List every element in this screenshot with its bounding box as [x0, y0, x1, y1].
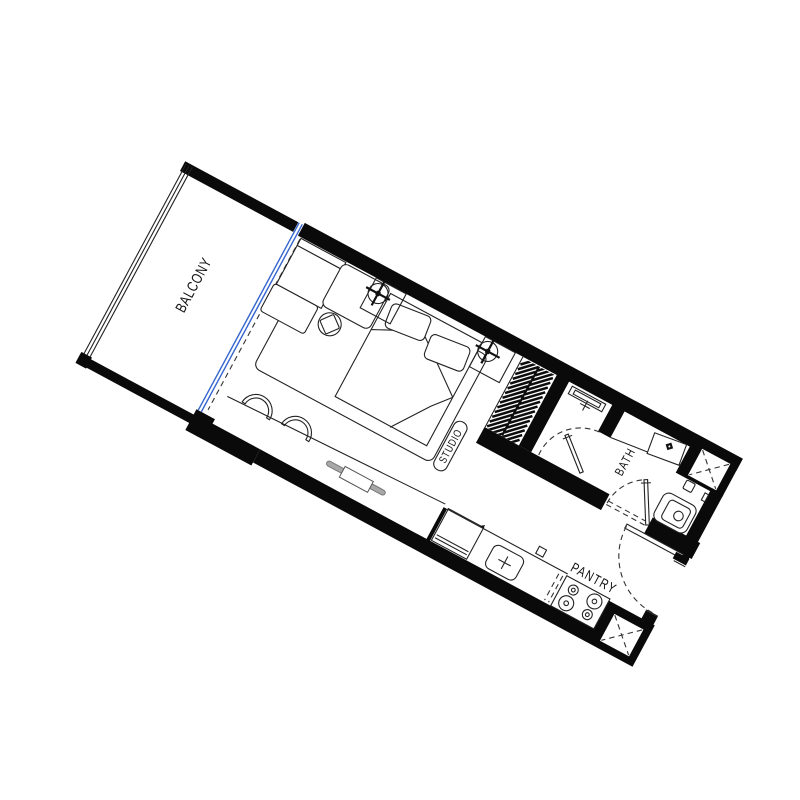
svg-text:BATH: BATH	[613, 446, 639, 478]
